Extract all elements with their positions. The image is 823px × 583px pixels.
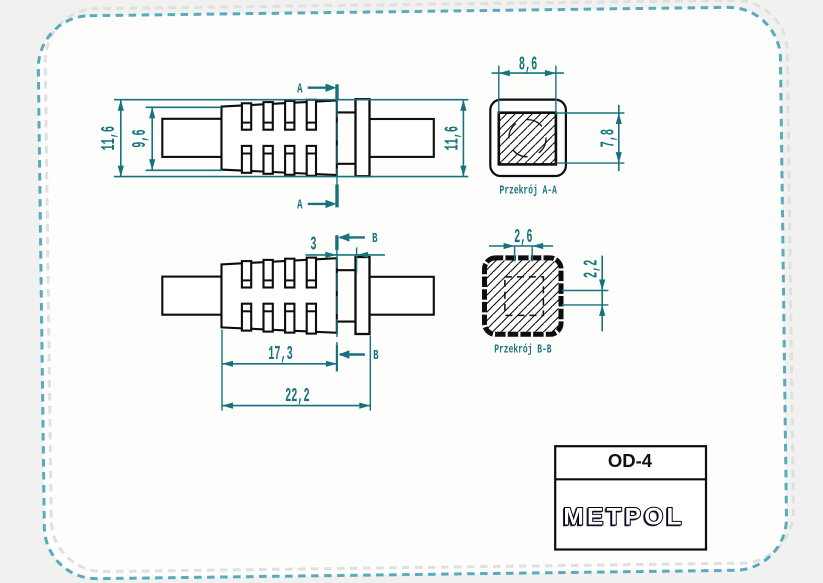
- svg-text:Przekrój B-B: Przekrój B-B: [494, 343, 551, 357]
- svg-text:OD-4: OD-4: [608, 450, 653, 471]
- svg-text:3: 3: [310, 233, 316, 256]
- svg-text:8,6: 8,6: [519, 53, 537, 76]
- svg-text:2,2: 2,2: [580, 260, 603, 278]
- svg-text:7,8: 7,8: [597, 129, 620, 147]
- svg-text:B: B: [373, 348, 378, 363]
- svg-text:METPOL: METPOL: [563, 504, 684, 531]
- svg-text:A: A: [297, 198, 302, 213]
- svg-text:11,6: 11,6: [441, 126, 464, 151]
- svg-text:A: A: [297, 82, 302, 97]
- svg-text:2,6: 2,6: [514, 225, 532, 248]
- svg-text:11,6: 11,6: [98, 126, 121, 151]
- svg-text:B: B: [372, 232, 377, 247]
- svg-text:Przekrój A-A: Przekrój A-A: [500, 184, 558, 198]
- svg-text:17,3: 17,3: [268, 342, 293, 365]
- svg-text:22,2: 22,2: [285, 385, 310, 408]
- svg-text:9,6: 9,6: [128, 129, 151, 147]
